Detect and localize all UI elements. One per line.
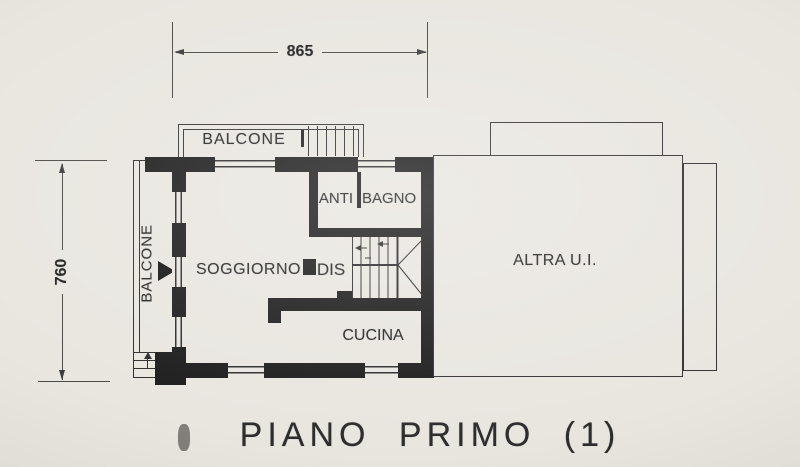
room-label-balcone-left: BALCONE — [138, 243, 155, 303]
floor-plan-canvas: 865 760 BALCONE BALCONE — [0, 0, 800, 467]
dim-left-extension-bottom — [38, 381, 110, 382]
room-label-altra-ui: ALTRA U.I. — [495, 252, 615, 270]
dim-left-value: 760 — [53, 250, 71, 294]
room-label-balcone-top: BALCONE — [192, 131, 296, 149]
window-bottom-1 — [228, 363, 264, 378]
window-top-1 — [215, 157, 275, 172]
altra-ui-annex-outline — [683, 163, 717, 371]
balcony-left-outer-line — [133, 160, 134, 378]
dim-arrow-down-icon — [59, 370, 65, 380]
steps-up-arrow-icon — [144, 352, 152, 359]
dim-arrow-up-icon — [59, 163, 65, 173]
room-label-dis: DIS — [314, 260, 348, 280]
wall-above-cucina — [268, 298, 434, 311]
wall-below-bagno — [309, 228, 424, 237]
dim-left-extension-top — [35, 160, 107, 161]
dim-top-value: 865 — [278, 43, 322, 61]
balcony-top-door-jamb — [301, 130, 304, 147]
dim-top-extension-right — [427, 22, 428, 98]
window-top-2 — [358, 157, 395, 172]
window-bottom-2 — [365, 363, 398, 378]
steps-up-arrow-stem — [147, 359, 148, 368]
room-label-anti: ANTI — [314, 190, 358, 207]
balcony-top-stair-hatch — [300, 126, 362, 156]
altra-ui-top-outline — [490, 122, 663, 157]
wall-cucina-stub — [268, 298, 281, 323]
dim-arrow-right-icon — [417, 49, 427, 55]
dim-top-extension-left — [172, 22, 173, 98]
window-left-1 — [172, 192, 186, 223]
dim-arrow-left-icon — [174, 49, 184, 55]
room-label-bagno: BAGNO — [362, 190, 416, 207]
window-left-2 — [172, 317, 186, 347]
room-label-cucina: CUCINA — [339, 327, 407, 345]
door-left-balcony — [172, 257, 186, 287]
room-label-soggiorno: SOGGIORNO — [196, 261, 300, 279]
page-title: PIANO PRIMO (1) — [150, 416, 710, 455]
wall-stair-corner-bump — [337, 291, 353, 299]
stairs-drawing — [352, 237, 424, 298]
